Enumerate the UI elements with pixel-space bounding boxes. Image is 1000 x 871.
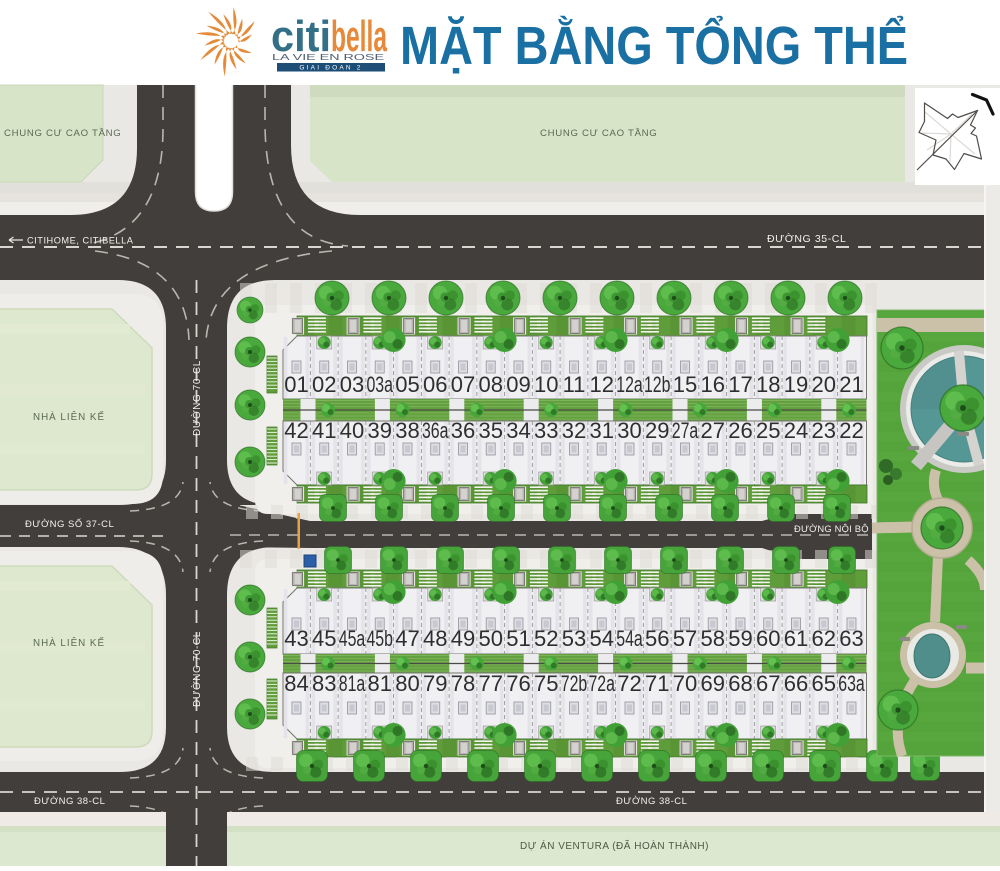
svg-text:11: 11 (563, 372, 586, 397)
svg-text:58: 58 (700, 626, 724, 651)
svg-text:65: 65 (811, 671, 835, 696)
svg-text:40: 40 (340, 418, 364, 443)
svg-text:66: 66 (784, 671, 808, 696)
svg-text:ĐƯỜNG SỐ 37-CL: ĐƯỜNG SỐ 37-CL (25, 518, 114, 530)
svg-text:75: 75 (534, 671, 558, 696)
svg-text:81a: 81a (339, 671, 366, 696)
svg-text:12: 12 (589, 372, 613, 397)
svg-text:CITIHOME, CITIBELLA: CITIHOME, CITIBELLA (27, 236, 134, 246)
svg-text:27a: 27a (672, 418, 699, 443)
svg-text:07: 07 (451, 372, 475, 397)
svg-text:34: 34 (506, 418, 530, 443)
svg-text:16: 16 (700, 372, 724, 397)
svg-text:35: 35 (478, 418, 502, 443)
svg-text:56: 56 (645, 626, 669, 651)
svg-text:52: 52 (534, 626, 558, 651)
svg-text:38: 38 (395, 418, 419, 443)
svg-text:36a: 36a (422, 418, 449, 443)
svg-text:48: 48 (423, 626, 447, 651)
svg-text:12a: 12a (616, 372, 643, 397)
svg-text:03: 03 (340, 372, 364, 397)
svg-text:83: 83 (312, 671, 336, 696)
svg-text:25: 25 (756, 418, 780, 443)
svg-text:18: 18 (756, 372, 780, 397)
svg-text:72a: 72a (588, 671, 615, 696)
svg-text:45b: 45b (366, 626, 393, 651)
svg-text:CHUNG CƯ CAO TẦNG: CHUNG CƯ CAO TẦNG (540, 128, 657, 139)
svg-text:19: 19 (784, 372, 808, 397)
svg-text:12b: 12b (644, 372, 671, 397)
svg-text:67: 67 (756, 671, 780, 696)
svg-text:06: 06 (423, 372, 447, 397)
svg-text:50: 50 (478, 626, 502, 651)
svg-text:33: 33 (534, 418, 558, 443)
svg-text:20: 20 (811, 372, 835, 397)
svg-text:39: 39 (367, 418, 391, 443)
svg-text:69: 69 (700, 671, 724, 696)
svg-text:03a: 03a (366, 372, 393, 397)
svg-text:81: 81 (367, 671, 391, 696)
svg-text:31: 31 (589, 418, 613, 443)
svg-text:76: 76 (506, 671, 530, 696)
svg-text:DỰ ÁN VENTURA (ĐÃ HOÀN THÀNH): DỰ ÁN VENTURA (ĐÃ HOÀN THÀNH) (520, 839, 709, 852)
svg-text:ĐƯỜNG 70-CL: ĐƯỜNG 70-CL (190, 360, 203, 436)
svg-text:59: 59 (728, 626, 752, 651)
svg-text:62: 62 (811, 626, 835, 651)
svg-text:47: 47 (395, 626, 419, 651)
svg-text:15: 15 (673, 372, 697, 397)
svg-text:ĐƯỜNG 70-CL: ĐƯỜNG 70-CL (190, 631, 203, 707)
svg-text:ĐƯỜNG 35-CL: ĐƯỜNG 35-CL (767, 232, 846, 245)
svg-text:32: 32 (562, 418, 586, 443)
svg-text:29: 29 (645, 418, 669, 443)
svg-text:45: 45 (312, 626, 336, 651)
svg-text:10: 10 (534, 372, 558, 397)
svg-text:GIAI ĐOAN 2: GIAI ĐOAN 2 (299, 65, 362, 72)
svg-text:22: 22 (839, 418, 863, 443)
svg-text:68: 68 (728, 671, 752, 696)
svg-text:63a: 63a (838, 671, 865, 696)
svg-text:60: 60 (756, 626, 780, 651)
svg-text:63: 63 (839, 626, 863, 651)
svg-text:51: 51 (506, 626, 530, 651)
svg-text:05: 05 (395, 372, 419, 397)
svg-text:02: 02 (312, 372, 336, 397)
svg-text:72: 72 (617, 671, 641, 696)
svg-text:01: 01 (284, 372, 308, 397)
svg-text:42: 42 (284, 418, 308, 443)
svg-text:53: 53 (562, 626, 586, 651)
svg-text:49: 49 (451, 626, 475, 651)
svg-text:24: 24 (784, 418, 808, 443)
svg-text:80: 80 (395, 671, 419, 696)
svg-text:61: 61 (784, 626, 808, 651)
svg-text:71: 71 (645, 671, 669, 696)
svg-text:72b: 72b (561, 671, 588, 696)
svg-text:77: 77 (478, 671, 502, 696)
svg-text:NHÀ LIÊN KẾ: NHÀ LIÊN KẾ (33, 412, 105, 423)
svg-text:54: 54 (589, 626, 613, 651)
svg-text:LA VIE EN ROSE: LA VIE EN ROSE (272, 53, 384, 62)
svg-text:41: 41 (312, 418, 336, 443)
svg-text:21: 21 (839, 372, 863, 397)
svg-text:36: 36 (451, 418, 475, 443)
svg-text:08: 08 (478, 372, 502, 397)
svg-text:17: 17 (728, 372, 752, 397)
svg-text:09: 09 (506, 372, 530, 397)
svg-text:ĐƯỜNG NỘI BỘ: ĐƯỜNG NỘI BỘ (794, 523, 869, 534)
svg-text:70: 70 (673, 671, 697, 696)
svg-text:23: 23 (811, 418, 835, 443)
svg-text:MẶT BẰNG TỔNG THỂ: MẶT BẰNG TỔNG THỂ (400, 16, 908, 76)
svg-text:54a: 54a (616, 626, 643, 651)
svg-text:84: 84 (284, 671, 308, 696)
svg-text:45a: 45a (339, 626, 366, 651)
svg-text:26: 26 (728, 418, 752, 443)
svg-text:78: 78 (451, 671, 475, 696)
svg-text:30: 30 (617, 418, 641, 443)
svg-text:43: 43 (284, 626, 308, 651)
svg-text:ĐƯỜNG 38-CL: ĐƯỜNG 38-CL (34, 796, 105, 807)
svg-text:27: 27 (700, 418, 724, 443)
svg-text:ĐƯỜNG 38-CL: ĐƯỜNG 38-CL (616, 796, 687, 807)
svg-text:57: 57 (673, 626, 697, 651)
svg-text:79: 79 (423, 671, 447, 696)
svg-text:NHÀ LIÊN KẾ: NHÀ LIÊN KẾ (33, 638, 105, 649)
svg-text:CHUNG CƯ CAO TẦNG: CHUNG CƯ CAO TẦNG (4, 128, 121, 139)
